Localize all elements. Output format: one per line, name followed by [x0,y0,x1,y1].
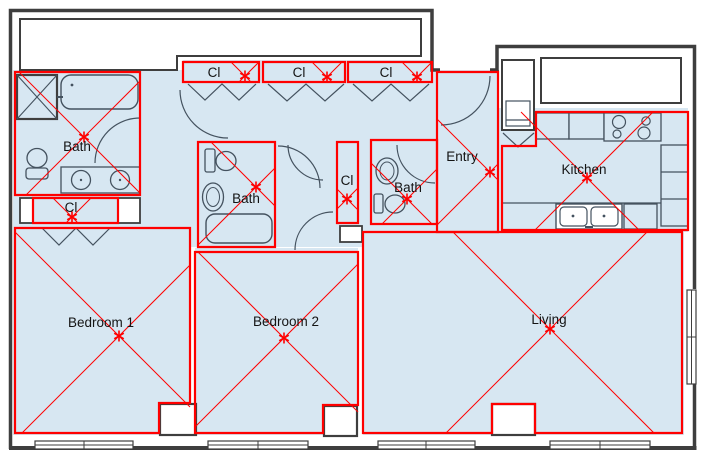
room-label-closet-b: Cl [293,65,306,80]
room-label-entry: Entry [446,149,478,164]
room-label-bath-1: Bath [63,139,91,154]
basin-dot-1 [572,215,575,218]
floor-plan-canvas: BathClBedroom 1ClClClBathBedroom 2ClBath… [0,0,704,458]
sink-1-left-dot [80,179,82,181]
basin-dot-2 [603,215,606,218]
room-label-closet-c: Cl [380,65,393,80]
room-label-bedroom-1: Bedroom 1 [68,315,134,330]
door-jamb-3 [340,226,362,242]
kitchen-sink-unit [556,204,622,229]
column-bedroom1 [160,404,196,435]
room-label-closet-1: Cl [65,200,78,215]
shelf-unit [661,145,688,226]
room-label-living: Living [531,312,566,327]
room-label-bath-2: Bath [232,191,260,206]
column-bedroom2 [324,406,357,436]
cabinet-2 [569,113,604,139]
stove [604,113,661,141]
bathtub-1-drain [71,84,74,87]
door-jamb-1 [20,198,33,223]
exterior-niche [541,58,681,103]
sink-1-right-dot [119,179,121,181]
room-label-closet-a: Cl [208,65,221,80]
room-label-bath-3: Bath [394,180,422,195]
cabinet-1 [536,113,569,139]
room-label-closet-hall: Cl [341,173,354,188]
floor-hall-area [140,70,437,247]
room-label-bedroom-2: Bedroom 2 [253,314,319,329]
door-jamb-2 [118,198,140,223]
column-living [492,404,535,435]
dishwasher [624,204,657,229]
floor-plan: BathClBedroom 1ClClClBathBedroom 2ClBath… [0,0,704,458]
room-label-kitchen: Kitchen [561,162,606,177]
